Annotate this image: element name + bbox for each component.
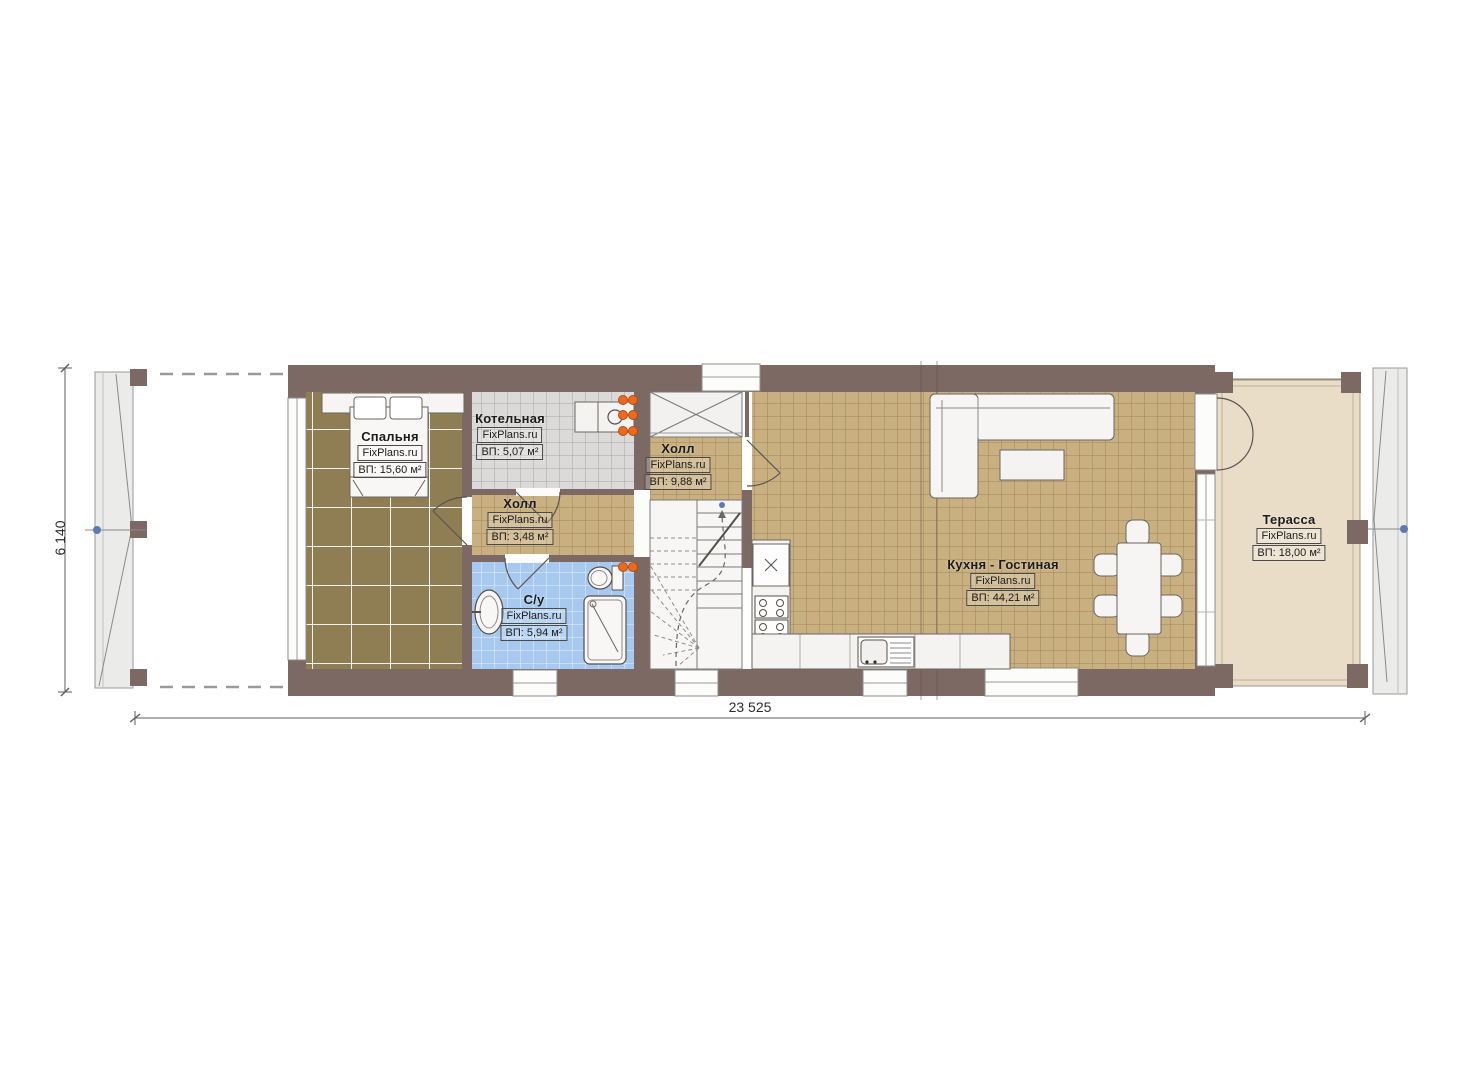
chair	[1094, 554, 1120, 576]
window-bottom-bathroom	[513, 670, 557, 696]
chair	[1094, 595, 1120, 617]
room-area: ВП: 5,07 м²	[476, 444, 543, 460]
staircase	[650, 500, 742, 669]
watermark: FixPlans.ru	[357, 445, 422, 461]
room-area: ВП: 15,60 м²	[353, 462, 426, 478]
fridge	[753, 544, 789, 586]
room-area: ВП: 9,88 м²	[644, 474, 711, 490]
shower	[584, 596, 626, 664]
window-bottom-living	[985, 668, 1078, 696]
level-marker-left	[93, 526, 101, 534]
pillow	[354, 397, 386, 419]
room-name: Холл	[503, 496, 536, 511]
room-name: С/у	[524, 592, 545, 607]
room-area: ВП: 18,00 м²	[1252, 545, 1325, 561]
room-name: Котельная	[475, 411, 545, 426]
room-name: Холл	[661, 441, 694, 456]
coffee-table	[1000, 450, 1064, 480]
dining-table	[1117, 543, 1161, 634]
room-name: Кухня - Гостиная	[947, 557, 1059, 572]
room-name: Терасса	[1263, 512, 1316, 527]
toilet	[588, 566, 623, 590]
room-name: Спальня	[361, 429, 419, 444]
room-label-bedroom: Спальня FixPlans.ru ВП: 15,60 м²	[353, 429, 426, 478]
room-area: ВП: 44,21 м²	[966, 590, 1039, 606]
watermark: FixPlans.ru	[501, 608, 566, 624]
room-area: ВП: 3,48 м²	[486, 529, 553, 545]
watermark: FixPlans.ru	[970, 573, 1035, 589]
pillow	[390, 397, 422, 419]
window-bottom-stairs	[675, 670, 718, 696]
chair	[1126, 520, 1149, 546]
dimension-height-label: 6 140	[52, 508, 68, 568]
kitchen-sink	[858, 637, 914, 667]
watermark: FixPlans.ru	[487, 512, 552, 528]
room-label-boiler: Котельная FixPlans.ru ВП: 5,07 м²	[475, 411, 545, 460]
window-bottom-kitchen	[863, 670, 907, 696]
room-label-hall-small: Холл FixPlans.ru ВП: 3,48 м²	[486, 496, 553, 545]
room-label-terrace: Терасса FixPlans.ru ВП: 18,00 м²	[1252, 512, 1325, 561]
watermark: FixPlans.ru	[1256, 528, 1321, 544]
watermark: FixPlans.ru	[477, 427, 542, 443]
room-label-hall: Холл FixPlans.ru ВП: 9,88 м²	[644, 441, 711, 490]
window-bedroom-left	[288, 398, 306, 660]
room-label-bathroom: С/у FixPlans.ru ВП: 5,94 м²	[500, 592, 567, 641]
room-area: ВП: 5,94 м²	[500, 625, 567, 641]
watermark: FixPlans.ru	[645, 457, 710, 473]
dimension-width-label: 23 525	[729, 699, 772, 715]
floor-plan-page: Спальня FixPlans.ru ВП: 15,60 м² Котельн…	[0, 0, 1474, 1080]
room-label-kitchen-living: Кухня - Гостиная FixPlans.ru ВП: 44,21 м…	[947, 557, 1059, 606]
window-terrace-wall	[1197, 474, 1215, 666]
level-marker-right	[1400, 525, 1408, 533]
wardrobe	[650, 392, 742, 437]
left-roof-overhang	[85, 369, 288, 688]
window-top-wall	[702, 364, 760, 391]
